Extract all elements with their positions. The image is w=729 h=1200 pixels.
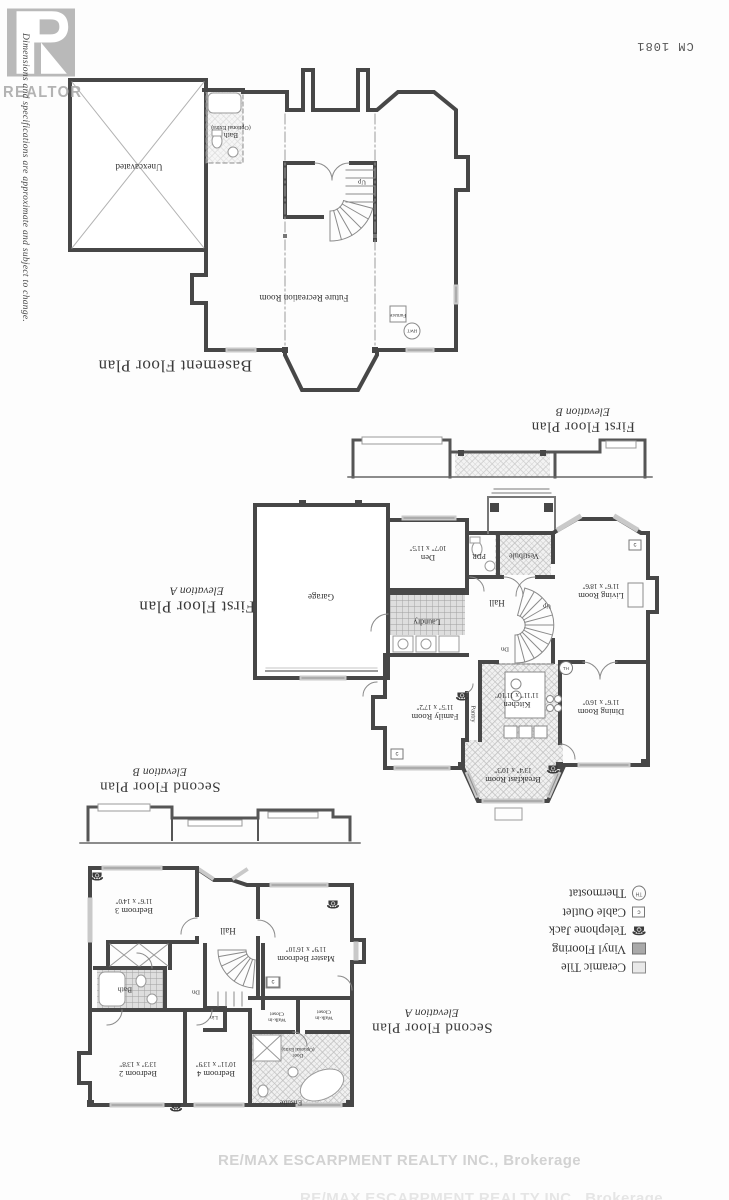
legend: Ceramic Tile Vinyl Flooring ☎ Telephone … <box>494 884 646 977</box>
hwt-label: HWT <box>407 328 417 333</box>
first-floor-title-text: First Floor Plan <box>531 418 635 435</box>
family-name: Family Room <box>412 711 459 721</box>
second-floor-elevation-b-strip <box>80 804 360 843</box>
breakfast-name: Breakfast Room <box>485 774 540 784</box>
basement-title: Basement Floor Plan <box>98 356 252 375</box>
second-floor-title-text: Second Floor Plan <box>371 1019 492 1036</box>
legend-label: Vinyl Flooring <box>552 941 626 956</box>
room-label-bedroom3: Bedroom 3 11'6" x 14'0" <box>115 897 153 915</box>
first-floor-elevation-b-strip <box>348 437 652 477</box>
room-label-dining: Dining Room 11'6" x 16'0" <box>578 698 625 716</box>
first-floor-stairs <box>515 588 554 663</box>
first-floor-title-text: First Floor Plan <box>139 597 255 616</box>
legend-row-thermostat: TH Thermostat <box>494 884 646 903</box>
room-label-living: Living Room 11'6" x 18'6" <box>578 582 624 600</box>
legend-label: Cable Outlet <box>562 904 626 919</box>
cable-outlet-icon: c <box>629 540 642 551</box>
elevation-b-subtitle: Elevation B <box>99 765 220 778</box>
legend-row-vinyl-flooring: Vinyl Flooring <box>494 940 646 959</box>
realtor-r-icon <box>7 7 75 78</box>
room-label-future-recreation: Future Recreation Room <box>260 293 349 303</box>
room-label-family: Family Room 11'5" x 17'2" <box>412 703 459 721</box>
realtor-logo-text: REALTOR <box>3 84 73 102</box>
floorplan-sheet: REALTOR Dimensions and specifications ar… <box>0 0 729 1200</box>
realtor-logo <box>7 7 75 78</box>
disclaimer-text: Dimensions and specifications are approx… <box>20 33 30 322</box>
den-dims: 10'7" x 11'5" <box>409 544 446 552</box>
legend-row-ceramic-tile: Ceramic Tile <box>494 958 646 977</box>
telephone-jack-icon: ☎ <box>326 898 340 911</box>
second-floor-title-text: Second Floor Plan <box>99 778 220 795</box>
room-label-hall: Hall <box>489 598 505 608</box>
door-optional-note: Door (Optional Extra) <box>282 1045 315 1057</box>
vinyl-flooring-swatch-icon <box>632 943 646 955</box>
elevation-a-subtitle: Elevation A <box>371 1006 492 1019</box>
room-label-bedroom4: Bedroom 4 10'11" x 13'9" <box>196 1060 237 1078</box>
living-name: Living Room <box>578 590 624 600</box>
legend-row-cable-outlet: c Cable Outlet <box>494 903 646 922</box>
room-label-bedroom2: Bedroom 2 13'3" x 13'8" <box>119 1060 157 1078</box>
dining-dims: 11'6" x 16'0" <box>578 698 625 706</box>
master-dims: 11'9" x 16'10" <box>277 945 334 953</box>
kitchen-dims: 11'11" x 11'10" <box>495 691 539 699</box>
bedroom4-dims: 10'11" x 13'9" <box>196 1060 237 1068</box>
thermostat-letters: TH <box>632 886 646 901</box>
master-name: Master Bedroom <box>277 953 334 963</box>
room-label-garage: Garage <box>308 592 334 602</box>
stairs-up-label: Up <box>543 602 551 609</box>
room-label-pantry: Pantry <box>470 706 477 723</box>
room-label-laundry: Laundry <box>413 617 440 626</box>
breakfast-dims: 13'4" x 10'3" <box>485 766 540 774</box>
legend-row-telephone-jack: ☎ Telephone Jack <box>494 921 646 940</box>
second-floor-elevation-b-title: Second Floor Plan Elevation B <box>99 765 220 794</box>
room-label-breakfast: Breakfast Room 13'4" x 10'3" <box>485 766 540 784</box>
door-note-line1: Door <box>282 1051 315 1057</box>
living-dims: 11'6" x 18'6" <box>578 582 624 590</box>
bath-label: Bath <box>211 130 251 139</box>
stairs-dn-label: Dn <box>501 645 509 652</box>
room-label-pdr: PDR <box>472 552 486 560</box>
ceramic-tile-swatch-icon <box>632 961 646 973</box>
bedroom2-name: Bedroom 2 <box>119 1068 157 1078</box>
second-floor-elevation-a-title: Second Floor Plan Elevation A <box>371 1006 492 1035</box>
room-label-lin: Lin <box>210 1014 218 1020</box>
bedroom2-dims: 13'3" x 13'8" <box>119 1060 157 1068</box>
cable-letter: c <box>633 906 646 917</box>
laundry-vinyl <box>390 595 465 635</box>
thermostat-icon: TH <box>632 886 646 901</box>
den-name: Den <box>409 552 446 562</box>
bedroom3-dims: 11'6" x 14'0" <box>115 897 153 905</box>
room-label-walkin-closet-1: Walk-in Closet <box>268 1010 286 1023</box>
wic-line1: Walk-in <box>268 1016 286 1022</box>
stairs-dn-label: Dn <box>192 988 200 995</box>
door-note-line2: (Optional Extra) <box>282 1045 315 1051</box>
bedroom3-name: Bedroom 3 <box>115 905 153 915</box>
furnace-label: Furnace <box>390 311 406 317</box>
elevation-a-subtitle: Elevation A <box>139 584 255 597</box>
room-label-den: Den 10'7" x 11'5" <box>409 544 446 562</box>
brokerage-watermark: RE/MAX ESCARPMENT REALTY INC., Brokerage <box>218 1152 581 1169</box>
legend-label: Ceramic Tile <box>561 960 626 975</box>
wic-line2: Closet <box>268 1010 286 1016</box>
bath-note: (Optional Extra) <box>211 123 251 130</box>
room-label-bath: Bath (Optional Extra) <box>211 123 251 139</box>
room-label-master: Master Bedroom 11'9" x 16'10" <box>277 945 334 963</box>
cable-outlet-icon: c <box>267 977 280 988</box>
room-label-hall2: Hall <box>220 926 236 936</box>
legend-label: Telephone Jack <box>549 923 626 938</box>
legend-label: Thermostat <box>569 886 626 901</box>
room-label-bath2: Bath <box>118 985 132 994</box>
elevation-b-subtitle: Elevation B <box>531 405 635 418</box>
first-floor-elevation-a-title: First Floor Plan Elevation A <box>139 584 255 615</box>
brokerage-watermark-clipped: RE/MAX ESCARPMENT REALTY INC., Brokerage <box>300 1190 663 1200</box>
wic-line2: Closet <box>315 1008 333 1014</box>
wic-line1: Walk-in <box>315 1014 333 1020</box>
cable-outlet-icon: c <box>632 906 646 917</box>
telephone-icon: ☎ <box>632 924 646 936</box>
dining-name: Dining Room <box>578 706 625 716</box>
stairs-up-label: Up <box>358 178 366 185</box>
basement-plan <box>70 70 468 390</box>
cable-outlet-icon: c <box>391 749 404 760</box>
first-floor-elevation-b-title: First Floor Plan Elevation B <box>531 405 635 434</box>
room-label-vestibule: Vestibule <box>509 551 539 560</box>
kitchen-name: Kitchen <box>495 699 539 709</box>
basement-stairs <box>330 170 374 241</box>
telephone-jack-icon: ☎ <box>169 1101 183 1114</box>
telephone-jack-icon: ☎ <box>546 763 560 776</box>
thermostat-icon: TH <box>559 661 573 675</box>
bedroom4-name: Bedroom 4 <box>196 1068 237 1078</box>
room-label-walkin-closet-2: Walk-in Closet <box>315 1008 333 1021</box>
room-label-ensuite: Ensuite <box>280 1098 303 1107</box>
telephone-jack-icon: ☎ <box>455 690 469 703</box>
room-label-unexcavated: Unexcavated <box>116 162 163 172</box>
family-dims: 11'5" x 17'2" <box>412 703 459 711</box>
room-label-kitchen: Kitchen 11'11" x 11'10" <box>495 691 539 709</box>
telephone-jack-icon: ☎ <box>90 870 104 883</box>
basement-title-text: Basement Floor Plan <box>98 356 252 375</box>
plan-code: CM 1081 <box>636 39 693 53</box>
first-floor-plan <box>255 489 657 820</box>
